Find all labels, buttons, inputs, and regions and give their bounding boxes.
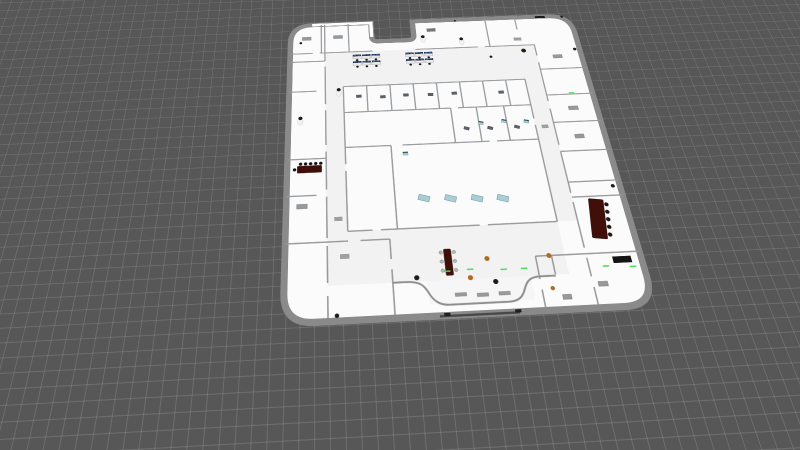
- desk: [562, 294, 572, 299]
- office-desk: [380, 95, 385, 98]
- desk: [334, 35, 343, 38]
- floor-mat: [541, 125, 549, 129]
- 3d-viewport[interactable]: [0, 0, 800, 450]
- office-desk: [498, 91, 504, 94]
- floor-mat: [426, 28, 435, 32]
- office-desk: [356, 95, 361, 98]
- desk: [553, 54, 563, 58]
- office-desk: [428, 93, 433, 96]
- bench: [499, 291, 511, 295]
- office-desk: [452, 92, 457, 95]
- bench: [477, 293, 489, 297]
- entrance-skirt-block: [444, 313, 451, 316]
- bench: [455, 292, 467, 296]
- column: [336, 88, 341, 97]
- column: [298, 117, 303, 126]
- desk: [598, 281, 609, 286]
- teal-chair: [403, 152, 408, 156]
- desk: [302, 37, 311, 40]
- wall-board-black: [535, 16, 545, 18]
- entrance-skirt-block: [515, 309, 522, 312]
- floor-mat: [334, 217, 342, 222]
- cabinet-black: [612, 256, 632, 263]
- desk: [575, 134, 585, 138]
- office-desk: [403, 93, 408, 96]
- floor-mat: [513, 37, 521, 40]
- desk: [568, 106, 578, 110]
- desk: [297, 204, 308, 209]
- floor-mat: [340, 254, 349, 259]
